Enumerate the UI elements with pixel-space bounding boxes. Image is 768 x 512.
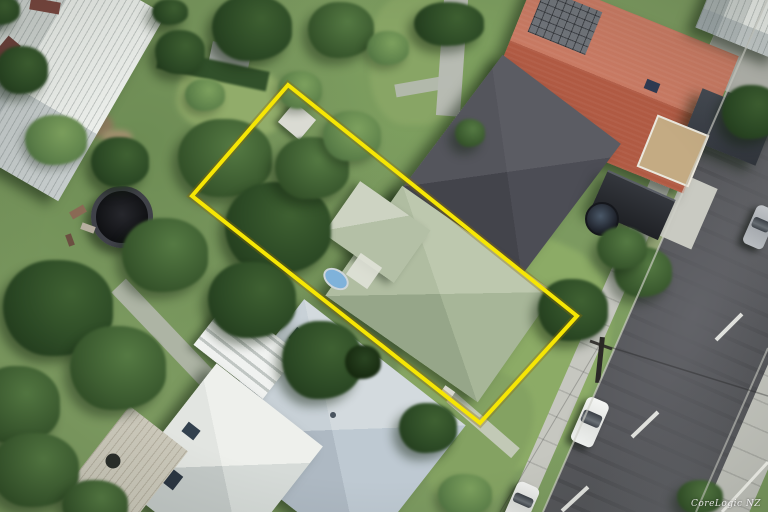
tree [722,85,768,139]
tree [155,30,205,74]
tree [208,262,296,338]
tree [25,115,87,165]
shrub [597,227,647,269]
palm-tree [345,345,381,379]
hedge [414,2,484,46]
tree [399,403,457,453]
tree [0,46,48,94]
shrub [185,79,225,111]
tree [308,2,374,58]
shrub [367,31,409,65]
tree [122,218,208,292]
watermark: CoreLogic NZ [691,499,761,509]
aerial-photo-map[interactable]: CoreLogic NZ [0,0,768,512]
garden-furniture [65,233,75,246]
tree [152,0,188,25]
tree [212,0,292,61]
tree [91,137,149,187]
car-windshield [580,409,603,429]
garden-furniture [69,205,87,220]
tree [455,119,485,147]
planter-pot [106,454,121,469]
tree [70,326,166,410]
tree [538,279,608,341]
tree [438,474,492,512]
tree [323,111,381,161]
car-windshield [512,492,535,510]
shrub [278,71,322,109]
car-windshield [751,216,768,233]
